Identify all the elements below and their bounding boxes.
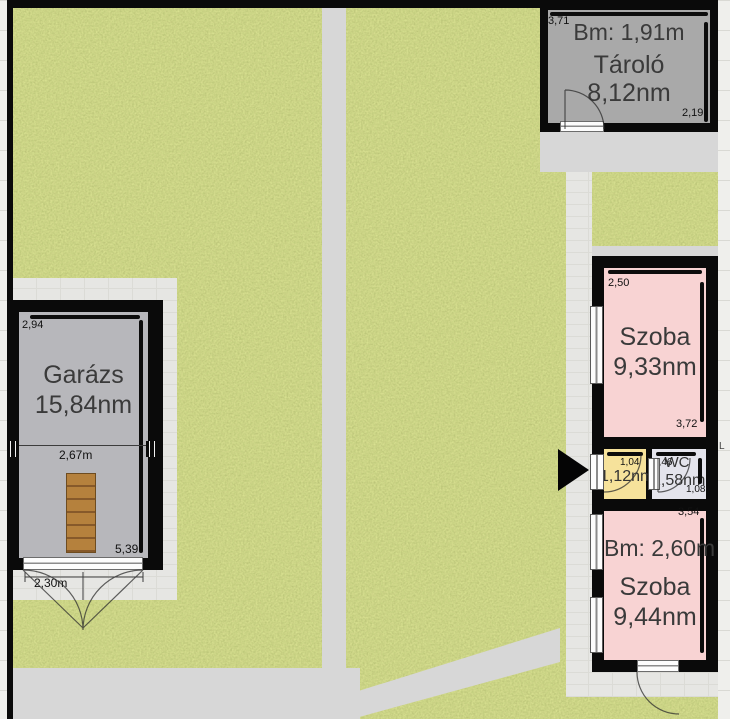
szoba-also-door[interactable] xyxy=(637,660,679,672)
tarolo-bm-label: Bm: 1,91m xyxy=(548,20,710,45)
szoba-felso-name: Szoba xyxy=(604,324,706,352)
garazs-dim-door: 2,30m xyxy=(34,577,67,590)
szoba-felso-area: 9,33nm xyxy=(604,354,706,382)
pavement-house-strip xyxy=(566,172,592,697)
edge-mark-label: L xyxy=(719,441,725,452)
szoba-also-area: 9,44nm xyxy=(604,604,706,632)
eloszoba-dim-width: 1,04 xyxy=(620,457,639,468)
dimension-bar xyxy=(700,282,704,422)
tarolo-door[interactable] xyxy=(560,121,604,132)
tarolo-area: 8,12nm xyxy=(548,80,710,108)
garazs-dim-width: 2,94 xyxy=(22,319,43,331)
szoba-also-name: Szoba xyxy=(604,574,706,602)
dimension-bar xyxy=(698,458,702,484)
szoba-also-door-swing xyxy=(637,672,679,714)
sidewalk-left xyxy=(0,0,7,719)
path-bottom xyxy=(13,668,360,719)
garazs-area: 15,84nm xyxy=(19,392,148,420)
floorplan-canvas: 3,71 Bm: 1,91m Tároló 8,12nm 2,19 2,94 G… xyxy=(0,0,730,719)
garage-door[interactable] xyxy=(23,557,143,570)
pavement-garage-top xyxy=(13,278,177,300)
dimension-bar xyxy=(550,12,708,16)
window[interactable] xyxy=(590,514,603,570)
szoba-also-dim-height: 3,54 xyxy=(678,506,699,518)
room-tarolo[interactable]: 3,71 Bm: 1,91m Tároló 8,12nm 2,19 xyxy=(540,0,718,132)
dimension-bar xyxy=(607,452,643,456)
room-garazs[interactable]: 2,94 Garázs 15,84nm 2,67m 5,39 xyxy=(13,300,163,570)
pavement-house-apron xyxy=(592,672,718,697)
path-house-top xyxy=(592,246,730,256)
garage-inner-line xyxy=(19,445,148,446)
path-vertical xyxy=(322,8,346,702)
tarolo-name: Tároló xyxy=(548,52,710,80)
eloszoba-area: 1,12nm xyxy=(600,468,648,486)
entrance-door-threshold[interactable] xyxy=(590,454,604,490)
wc-dim-height: 1,08 xyxy=(686,484,705,495)
tarolo-dim-height: 2,19 xyxy=(682,107,703,119)
stairs[interactable] xyxy=(66,473,96,553)
sidewalk-right xyxy=(718,0,730,719)
wc-door-threshold[interactable] xyxy=(648,458,660,490)
wall-opening-marker-icon xyxy=(7,441,19,457)
wall-opening-marker-icon xyxy=(146,441,158,457)
dimension-bar xyxy=(30,315,140,319)
dimension-bar xyxy=(608,270,702,274)
szoba-felso-dim-width: 2,50 xyxy=(608,277,629,289)
garazs-dim-depth: 5,39 xyxy=(115,543,138,556)
window[interactable] xyxy=(590,597,603,653)
entrance-arrow-icon[interactable] xyxy=(558,449,589,491)
szoba-felso-dim-height: 3,72 xyxy=(676,418,697,430)
window[interactable] xyxy=(590,306,603,384)
garazs-name: Garázs xyxy=(19,362,148,390)
path-diagonal xyxy=(320,628,560,719)
garazs-dim-inner: 2,67m xyxy=(59,449,92,462)
szoba-also-bm-label: Bm: 2,60m xyxy=(604,536,706,561)
pavement-garage-right xyxy=(163,278,177,600)
path-storage-band xyxy=(540,132,730,172)
dimension-bar xyxy=(139,320,143,553)
